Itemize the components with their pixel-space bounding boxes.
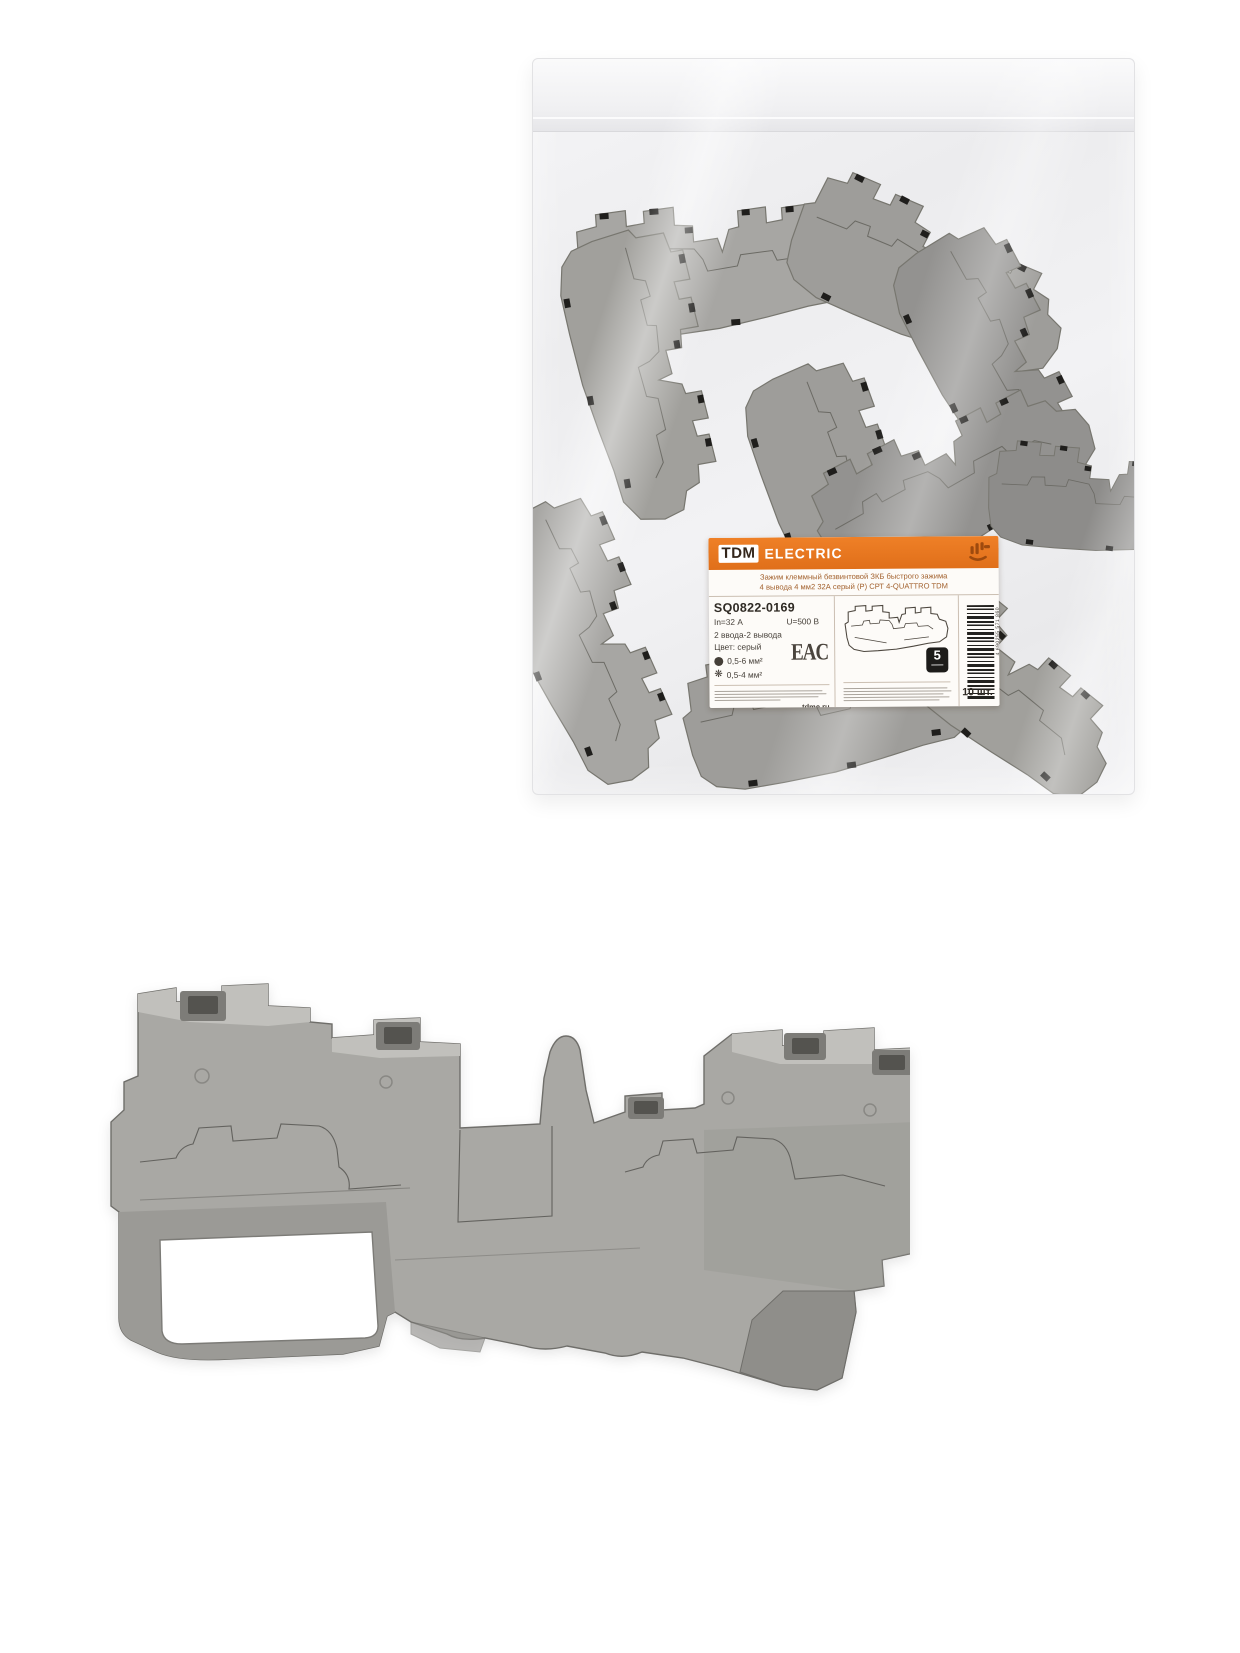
rated-voltage: U=500 В <box>786 617 819 627</box>
fine-print-line <box>844 693 944 695</box>
product-label: TDM ELECTRIC Зажим клеммный безвинтовой … <box>708 536 999 708</box>
fine-print-line <box>714 690 822 692</box>
tdm-logo: TDM <box>718 545 758 563</box>
sku-code: SQ0822-0169 <box>714 600 829 615</box>
stranded-wire-spec: ❋ 0,5-4 мм² <box>714 669 829 680</box>
fine-print-line <box>715 696 819 698</box>
fine-print-line <box>843 687 947 689</box>
warranty-years: 5 <box>926 647 948 663</box>
drawing-column: 5 <box>835 595 960 707</box>
plastic-bag: TDM ELECTRIC Зажим клеммный безвинтовой … <box>532 58 1135 795</box>
product-title-line2: 4 вывода 4 мм2 32А серый (Р) СРТ 4-QUATT… <box>715 581 993 592</box>
label-header: TDM ELECTRIC <box>708 536 998 570</box>
solid-wire-icon <box>714 656 723 665</box>
barcode-column: 4 690255 571 860 10 шт. <box>959 595 1000 706</box>
fine-print-line <box>715 699 781 700</box>
stranded-wire-icon: ❋ <box>714 670 722 679</box>
electrical-ratings: In=32 А U=500 В <box>714 617 829 627</box>
spec-column: SQ0822-0169 In=32 А U=500 В 2 ввода-2 вы… <box>709 596 836 708</box>
brand-name: ELECTRIC <box>764 545 842 562</box>
terminal-block-product <box>80 960 910 1400</box>
website: tdme.ru <box>715 702 830 708</box>
fine-print-line <box>843 690 951 692</box>
product-photo: TDM ELECTRIC Зажим клеммный безвинтовой … <box>0 0 1240 1653</box>
fine-print-line <box>714 693 826 695</box>
product-title: Зажим клеммный безвинтовой ЗКБ быстрого … <box>709 568 999 594</box>
package-quantity: 10 шт. <box>959 686 995 698</box>
fine-print-line <box>844 696 950 698</box>
fine-print-line <box>844 699 940 701</box>
stranded-wire-range: 0,5-4 мм² <box>727 669 762 679</box>
label-grid: SQ0822-0169 In=32 А U=500 В 2 ввода-2 вы… <box>709 594 1000 708</box>
barcode-number: 4 690255 571 860 <box>995 607 1000 655</box>
warranty-badge: 5 <box>926 647 948 672</box>
eac-certification-mark: EAC <box>791 639 828 667</box>
terminals-count: 2 ввода-2 вывода <box>714 630 829 640</box>
solid-wire-range: 0,5-6 мм² <box>727 656 762 666</box>
fine-print <box>714 684 829 701</box>
tdm-hand-smile-icon <box>966 542 990 563</box>
warranty-badge-line <box>931 664 943 665</box>
rated-current: In=32 А <box>714 618 743 628</box>
fine-print <box>843 681 950 703</box>
